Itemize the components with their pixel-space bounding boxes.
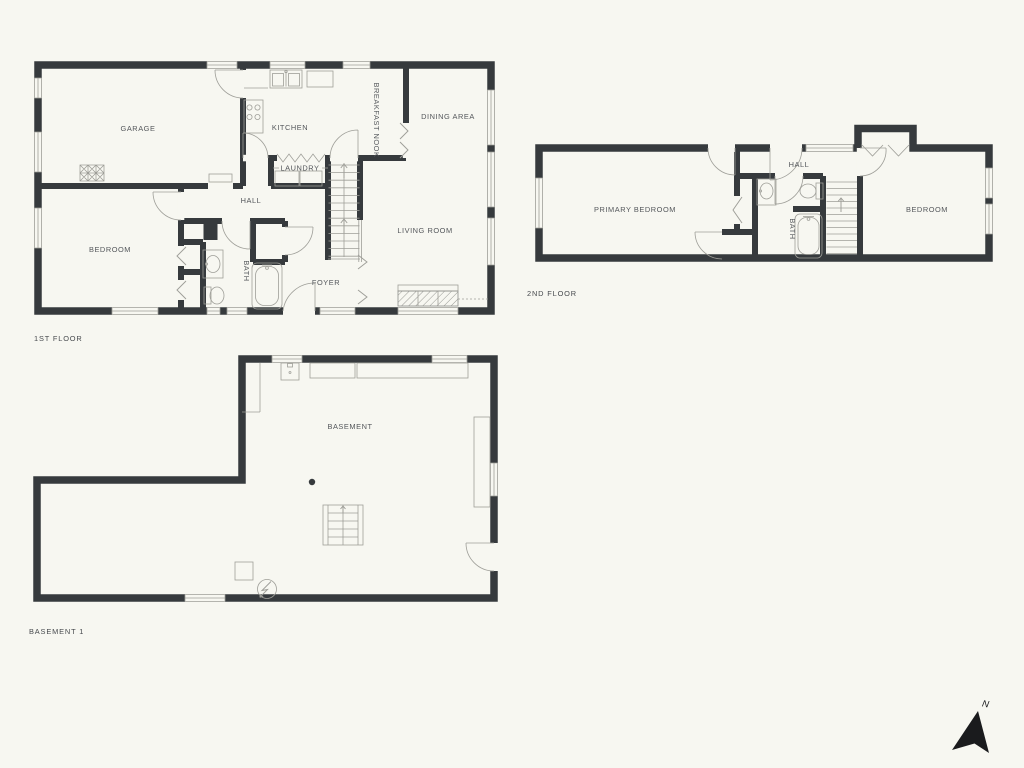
room-label-primary-bedroom: PRIMARY BEDROOM [594,205,676,214]
stairs [323,505,363,545]
room-label-laundry: LAUNDRY [280,164,319,173]
support-column [309,479,315,485]
floor-caption-first: 1ST FLOOR [34,334,83,343]
compass-needle-icon [952,711,989,753]
plumbing-chase [204,221,218,241]
toilet-icon [204,287,224,304]
second-floor-plan: PRIMARY BEDROOM HALL BATH BEDROOM 2ND FL… [527,129,989,299]
bathtub-icon [252,263,282,309]
room-label-living-room: LIVING ROOM [397,226,452,235]
walls [539,129,989,259]
stairs [838,198,844,212]
floor-caption-basement: BASEMENT 1 [29,627,84,636]
room-label-breakfast-nook: BREAKFAST NOOK [372,83,381,158]
door-swings [466,543,494,571]
floor-caption-second: 2ND FLOOR [527,289,577,298]
windows [34,61,993,602]
fireplace-icon [398,285,489,306]
room-label-hall: HALL [241,196,262,205]
walls [38,65,491,311]
room-label-bedroom: BEDROOM [906,205,948,214]
room-label-hall: HALL [789,160,810,169]
basement-plan: BASEMENT BASEMENT 1 [29,359,498,636]
bathtub-icon [795,214,822,258]
first-floor-plan: GARAGE KITCHEN BREAKFAST NOOK DINING ARE… [34,65,491,343]
room-label-dining-area: DINING AREA [421,112,475,121]
utility-sink-icon [281,363,299,380]
stairs [328,163,362,262]
garage-storage-icon [80,165,104,181]
shelf [474,417,490,507]
room-label-basement: BASEMENT [327,422,372,431]
floor-plan-page: GARAGE KITCHEN BREAKFAST NOOK DINING ARE… [0,0,1024,768]
wall-openings [490,543,498,571]
north-arrow: N [952,699,990,753]
room-label-kitchen: KITCHEN [272,123,308,132]
room-label-foyer: FOYER [312,278,340,287]
floor-plan-canvas: GARAGE KITCHEN BREAKFAST NOOK DINING ARE… [0,0,1024,768]
stove-icon [244,100,263,133]
room-label-bath: BATH [242,260,251,281]
garage-step [209,174,232,182]
basement-counters [310,363,468,378]
walls [37,359,494,598]
water-heater-icon [235,562,253,580]
toilet-icon [800,183,823,199]
kitchen-sink-icon [270,70,302,88]
compass-north-label: N [981,699,990,711]
room-label-bath: BATH [788,218,797,239]
room-label-garage: GARAGE [121,124,156,133]
bath-sink-icon [757,179,776,205]
room-label-bedroom: BEDROOM [89,245,131,254]
